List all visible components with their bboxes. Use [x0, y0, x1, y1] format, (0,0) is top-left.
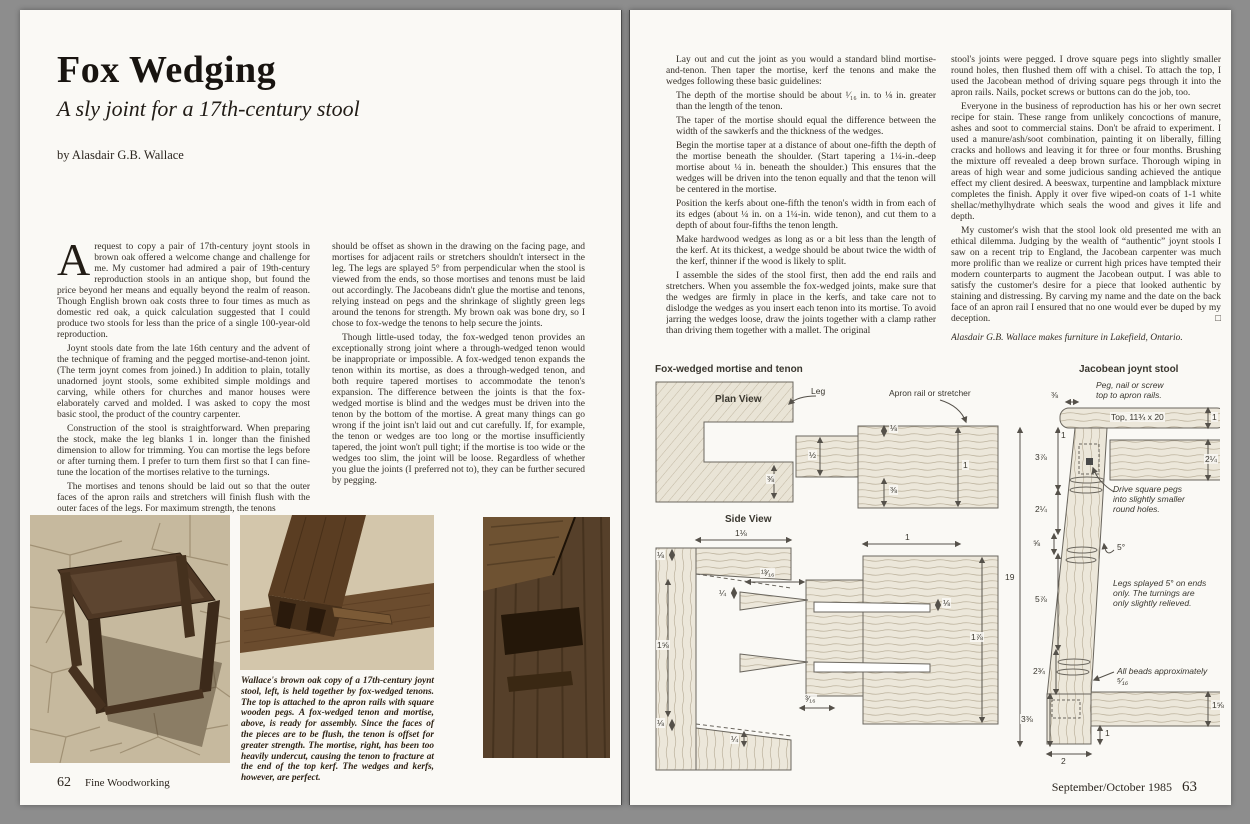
author-note: Alasdair G.B. Wallace makes furniture in… — [951, 333, 1221, 344]
body-paragraph: Arequest to copy a pair of 17th-century … — [57, 242, 310, 341]
dim-label: ⅛ — [656, 550, 665, 560]
page-footer: 62Fine Woodworking — [57, 773, 170, 791]
dim-label: ¼ — [718, 588, 727, 598]
side-view-label: Side View — [724, 514, 773, 525]
body-paragraph: Everyone in the business of reproduction… — [951, 102, 1221, 223]
dim-label: 1⅝ — [1211, 700, 1225, 710]
body-paragraph: stool's joints were pegged. I drove squa… — [951, 55, 1221, 99]
body-paragraph: should be offset as shown in the drawing… — [332, 242, 585, 330]
legs-splayed-note: Legs splayed 5° on ends only. The turnin… — [1112, 578, 1207, 609]
square-pegs-note: Drive square pegs into slightly smaller … — [1112, 484, 1186, 515]
dim-label: ¹³⁄₁₆ — [760, 568, 775, 578]
magazine-name: Fine Woodworking — [85, 777, 170, 789]
dim-label: ⅛ — [656, 718, 665, 728]
photo-undercut-mortise — [483, 517, 610, 758]
diagram-title-right: Jacobean joynt stool — [1078, 364, 1179, 375]
dim-label: ⅝ — [1032, 538, 1041, 548]
dim-label: 1⅛ — [734, 528, 748, 538]
article-subtitle: A sly joint for a 17th-century stool — [57, 96, 360, 122]
dim-label: ⅛ — [942, 598, 951, 608]
dim-label: 1⅞ — [970, 632, 984, 642]
dim-label: 1 — [1211, 412, 1218, 422]
column-3: Lay out and cut the joint as you would a… — [666, 55, 936, 367]
body-paragraph: The mortises and tenons should be laid o… — [57, 482, 310, 515]
photo-joynt-stool — [30, 515, 230, 763]
dim-label: ³⁄₁₆ — [804, 694, 817, 704]
diagram-title-left: Fox-wedged mortise and tenon — [654, 364, 804, 375]
dim-label: 2¼ — [1034, 504, 1048, 514]
body-paragraph: My customer's wish that the stool look o… — [951, 226, 1221, 325]
column-1: Arequest to copy a pair of 17th-century … — [57, 242, 310, 516]
page-62: Fox Wedging A sly joint for a 17th-centu… — [20, 10, 622, 805]
article-title: Fox Wedging — [57, 48, 276, 92]
dim-label: ⅜ — [889, 485, 898, 495]
guideline: Make hardwood wedges as long as or a bit… — [676, 235, 936, 268]
dim-label: 1 — [1104, 728, 1111, 738]
dim-label: 1 — [962, 460, 969, 470]
issue-date: September/October 1985 — [1052, 780, 1172, 794]
page-number: 62 — [57, 775, 71, 790]
body-paragraph: Construction of the stool is straightfor… — [57, 424, 310, 479]
body-paragraph: Lay out and cut the joint as you would a… — [666, 55, 936, 88]
dim-label: 19 — [1004, 572, 1015, 582]
dim-label: ⅜ — [1050, 390, 1059, 400]
end-of-article-mark: □ — [1205, 314, 1221, 325]
drawing-figure — [648, 362, 1220, 774]
peg-top-note: Peg, nail or screw top to apron rails. — [1095, 380, 1165, 400]
page-footer: September/October 198563 — [1052, 778, 1197, 796]
photo-caption: Wallace's brown oak copy of a 17th-centu… — [241, 676, 434, 784]
dim-label: 2¾ — [1032, 666, 1046, 676]
page-63: Lay out and cut the joint as you would a… — [629, 10, 1231, 805]
dim-label: 1 — [1060, 430, 1067, 440]
body-paragraph: I assemble the sides of the stool first,… — [666, 271, 936, 337]
guideline: The depth of the mortise should be about… — [676, 91, 936, 113]
body-paragraph: Though little-used today, the fox-wedged… — [332, 333, 585, 487]
dim-label: ⅛ — [889, 423, 898, 433]
column-2: should be offset as shown in the drawing… — [332, 242, 585, 516]
dim-label: ½ — [808, 450, 817, 460]
dim-label: 1⅝ — [656, 640, 670, 650]
leg-label: Leg — [810, 386, 826, 396]
body-paragraph: Joynt stools date from the late 16th cen… — [57, 344, 310, 421]
column-4: stool's joints were pegged. I drove squa… — [951, 55, 1221, 367]
byline: by Alasdair G.B. Wallace — [57, 148, 184, 163]
dim-label: 2 — [1060, 756, 1067, 766]
guideline: Position the kerfs about one-fifth the t… — [676, 199, 936, 232]
guideline: The taper of the mortise should equal th… — [676, 116, 936, 138]
plan-view-label: Plan View — [714, 394, 763, 405]
dim-label: 3⅞ — [1034, 452, 1048, 462]
top-board-label: Top, 11¾ x 20 — [1110, 412, 1165, 422]
dim-label: 2¼ — [1204, 454, 1218, 464]
dim-label: 5° — [1116, 542, 1126, 552]
beads-note: All beads approximately ⁵⁄₁₆ — [1116, 666, 1220, 686]
construction-drawing: Fox-wedged mortise and tenon Plan View L… — [648, 362, 1220, 774]
dim-label: ¼ — [730, 734, 739, 744]
dim-label: 3⅜ — [1020, 714, 1034, 724]
apron-label: Apron rail or stretcher — [888, 388, 972, 398]
magazine-spread: { "colors": {"background":"#8d8d8d","pag… — [0, 0, 1250, 824]
dim-label: 5⅞ — [1034, 594, 1048, 604]
page-number: 63 — [1182, 779, 1197, 795]
dim-label: 1 — [904, 532, 911, 542]
guideline: Begin the mortise taper at a distance of… — [676, 141, 936, 196]
drop-cap: A — [57, 242, 94, 276]
dim-label: ⅜ — [766, 474, 775, 484]
photo-tenon-and-mortise — [240, 515, 434, 670]
